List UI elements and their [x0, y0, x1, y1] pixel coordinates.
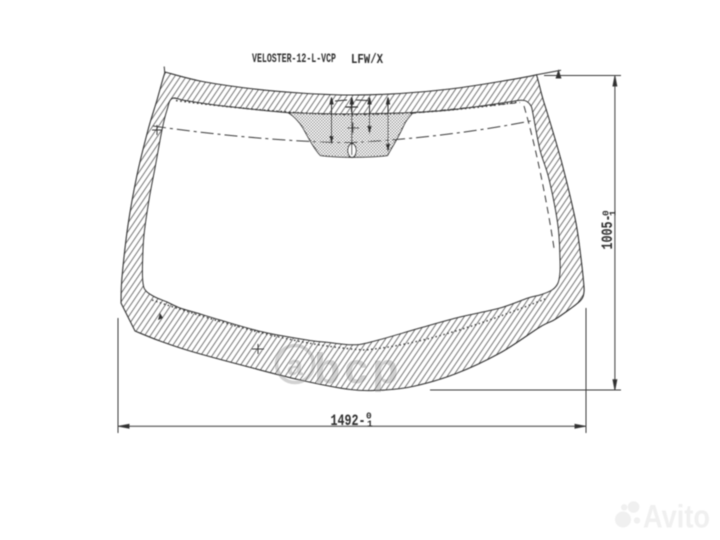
- svg-text:1: 1: [608, 210, 619, 216]
- svg-text:VELOSTER-12-L-VCP: VELOSTER-12-L-VCP: [252, 52, 336, 66]
- svg-text:LFW/X: LFW/X: [351, 52, 383, 68]
- svg-text:1: 1: [367, 419, 373, 430]
- svg-text:1005-: 1005-: [599, 215, 617, 250]
- svg-text:1492-: 1492-: [331, 412, 366, 430]
- svg-text:Avito: Avito: [643, 499, 710, 535]
